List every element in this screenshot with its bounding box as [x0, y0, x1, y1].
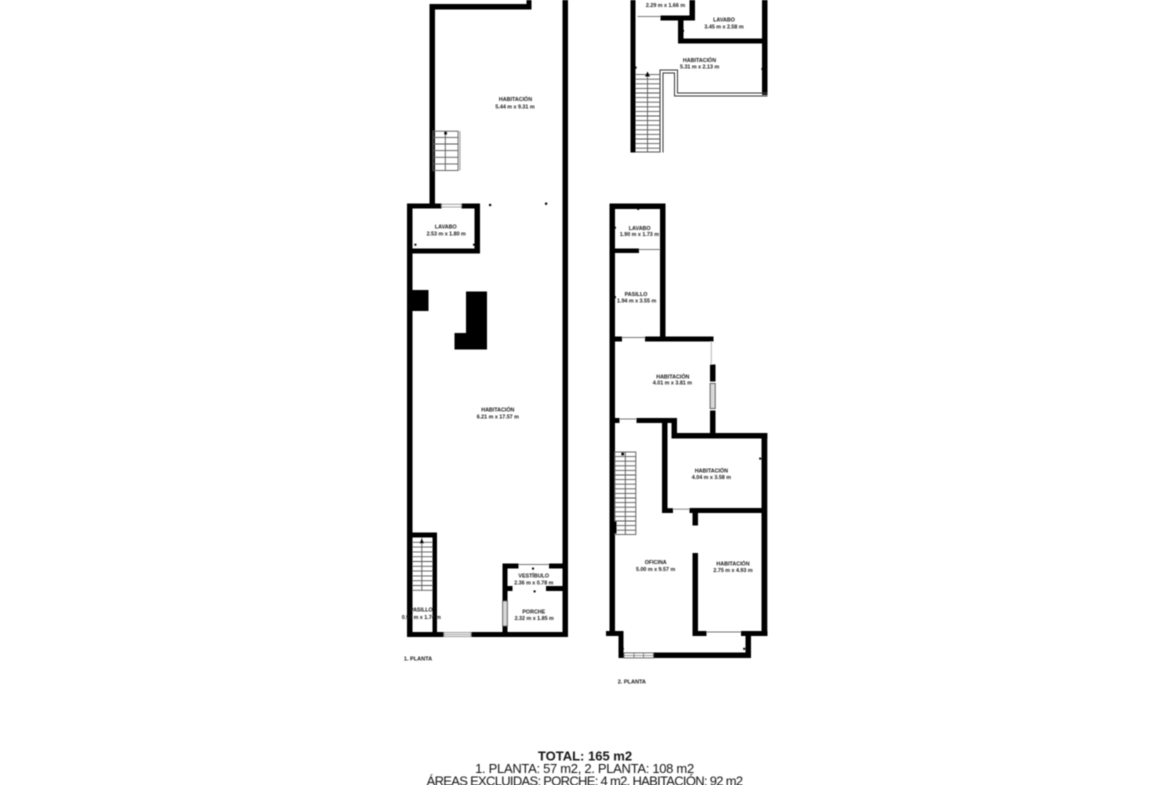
svg-text:2. PLANTA: 2. PLANTA [618, 679, 646, 685]
svg-text:HABITACIÓN: HABITACIÓN [656, 372, 689, 380]
svg-text:3.45 m x 2.58 m: 3.45 m x 2.58 m [704, 25, 743, 31]
svg-text:1. PLANTA: 1. PLANTA [404, 656, 432, 662]
svg-text:2.75 m x 4.93 m: 2.75 m x 4.93 m [713, 568, 752, 574]
svg-text:2.29 m x 1.66 m: 2.29 m x 1.66 m [646, 3, 685, 9]
svg-text:HABITACIÓN: HABITACIÓN [716, 560, 749, 568]
svg-text:PASILLO: PASILLO [625, 292, 648, 298]
svg-text:6.21 m x 17.57 m: 6.21 m x 17.57 m [477, 414, 519, 420]
svg-text:5.31 m x 2.13 m: 5.31 m x 2.13 m [680, 64, 719, 70]
svg-text:PASILLO: PASILLO [410, 608, 433, 614]
svg-text:OFICINA: OFICINA [645, 560, 667, 566]
svg-text:5.00 m x 9.57 m: 5.00 m x 9.57 m [636, 567, 675, 573]
svg-text:HABITACIÓN: HABITACIÓN [499, 95, 532, 103]
svg-text:PORCHE: PORCHE [522, 609, 545, 615]
svg-text:LAVABO: LAVABO [713, 18, 735, 24]
svg-text:VESTÍBULO: VESTÍBULO [518, 572, 549, 580]
svg-text:LAVABO: LAVABO [435, 225, 457, 231]
svg-text:0.97 m x 1.74 m: 0.97 m x 1.74 m [402, 615, 441, 621]
svg-text:4.01 m x 3.81 m: 4.01 m x 3.81 m [653, 381, 692, 387]
svg-text:ÁREAS EXCLUIDAS: PORCHE: 4 m2,: ÁREAS EXCLUIDAS: PORCHE: 4 m2, HABITACIÓ… [427, 774, 743, 785]
svg-text:HABITACIÓN: HABITACIÓN [683, 56, 716, 64]
svg-text:1.90 m x 1.73 m: 1.90 m x 1.73 m [620, 232, 659, 238]
svg-text:HABITACIÓN: HABITACIÓN [695, 467, 728, 475]
svg-text:4.04 m x 3.58 m: 4.04 m x 3.58 m [692, 475, 731, 481]
svg-text:5.44 m x 9.31 m: 5.44 m x 9.31 m [495, 105, 534, 111]
svg-text:2.53 m x 1.80 m: 2.53 m x 1.80 m [427, 232, 466, 238]
svg-text:HABITACIÓN: HABITACIÓN [481, 406, 514, 414]
svg-text:2.36 m x 0.78 m: 2.36 m x 0.78 m [514, 580, 553, 586]
svg-text:1.94 m x 3.55 m: 1.94 m x 3.55 m [617, 299, 656, 305]
svg-text:2.32 m x 1.85 m: 2.32 m x 1.85 m [515, 616, 554, 622]
svg-text:LAVABO: LAVABO [629, 226, 651, 232]
